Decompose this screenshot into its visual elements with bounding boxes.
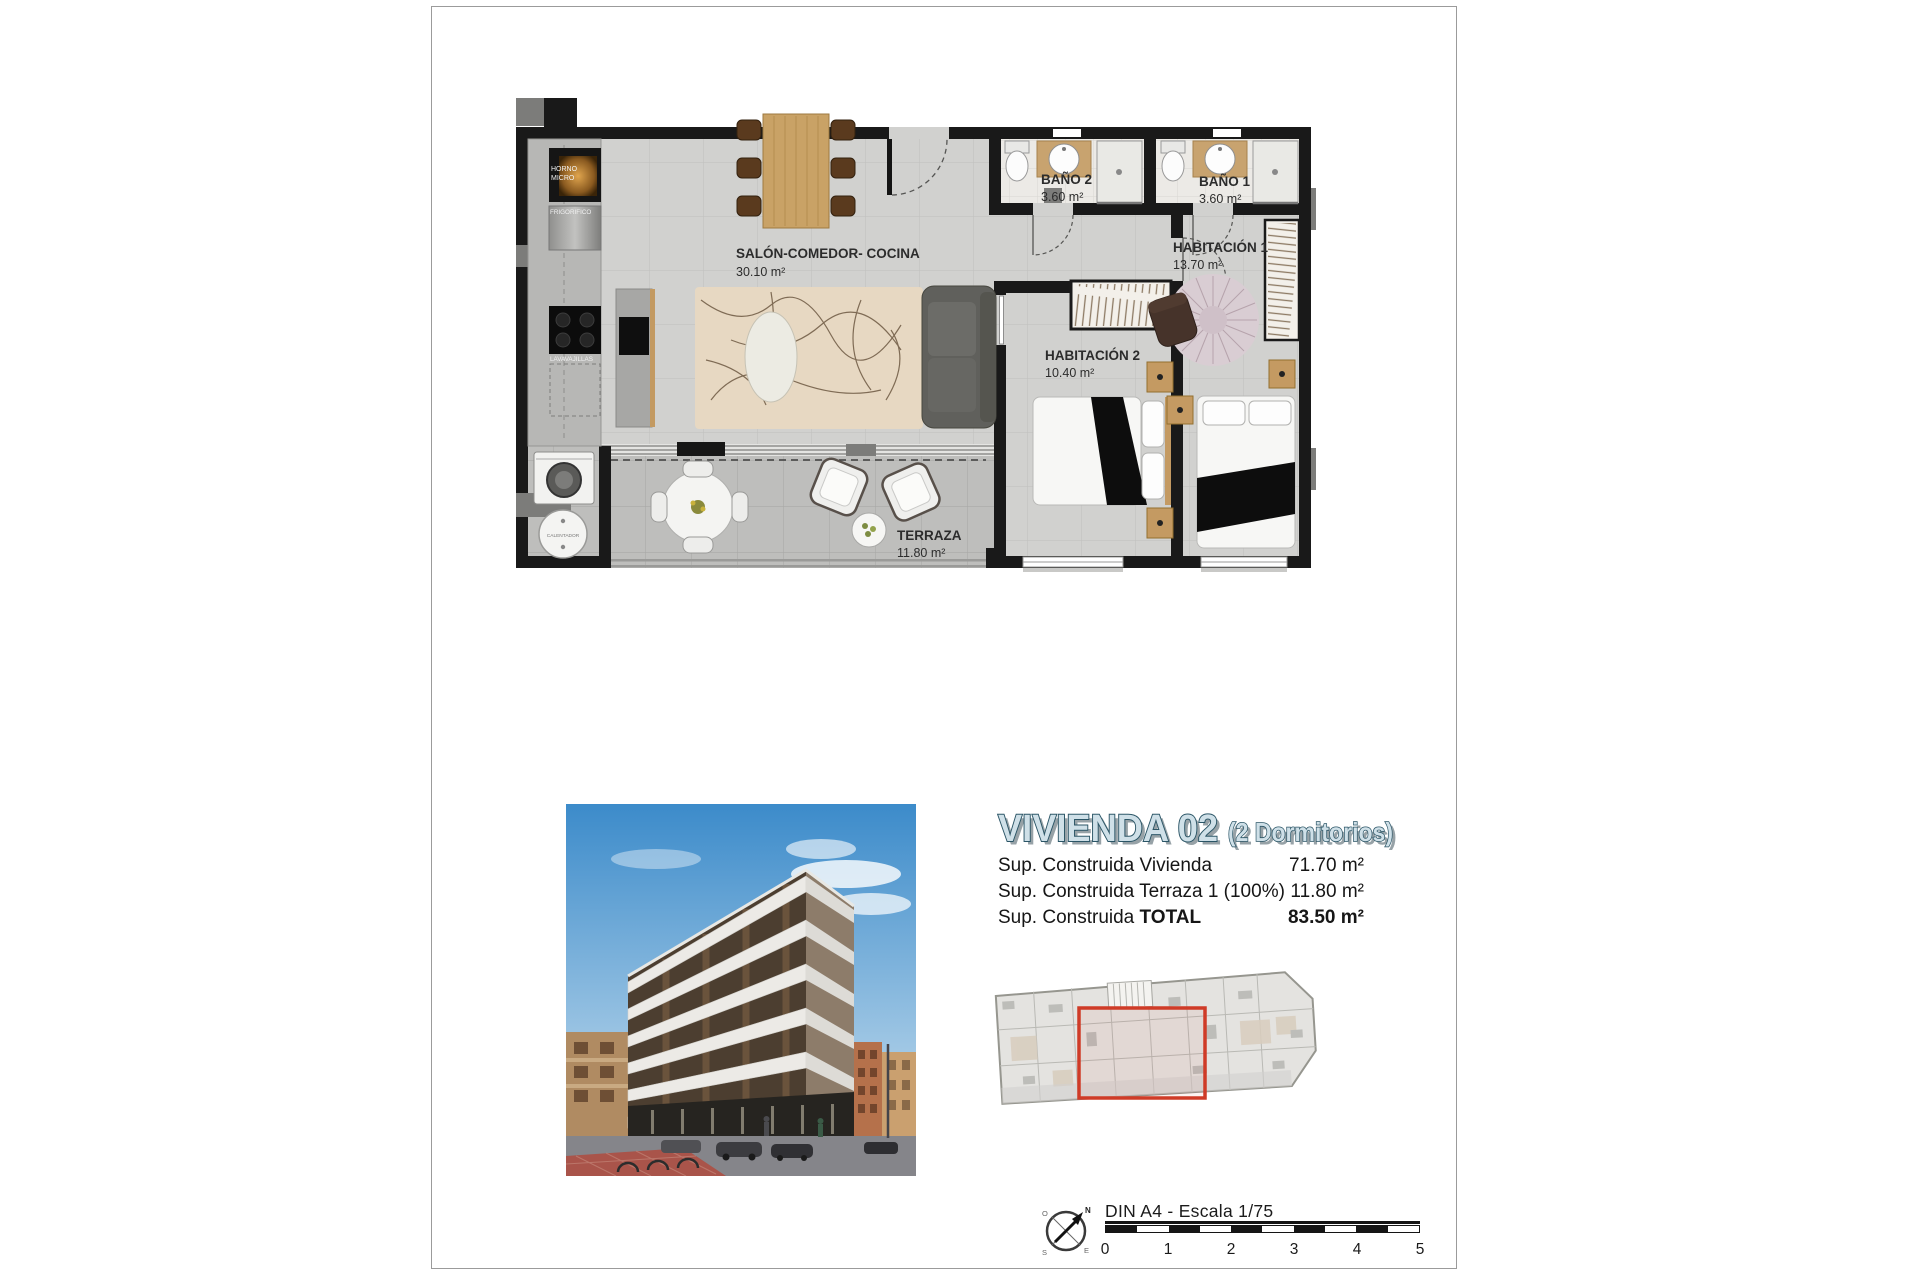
toilet [1162,151,1184,181]
rug [695,287,923,429]
side-table [852,513,886,547]
surface-row: Sup. Construida Vivienda 71.70 m² [998,853,1364,879]
title-block: VIVIENDA 02 (2 Dormitorios) VIVIENDA 02 … [996,797,1416,855]
surface-label: Sup. Construida [998,907,1140,928]
tv-unit [616,289,652,427]
scale-ticks: 0 1 2 3 4 5 [1105,1241,1420,1261]
calentador-label: CALENTADOR [547,533,580,539]
unit-highlight [1079,1008,1205,1098]
micro-label: MICRO [551,175,575,182]
compass-s: S [1042,1248,1047,1257]
hab2-area: 10.40 m² [1045,366,1094,380]
surface-value: 71.70 m² [1289,853,1364,879]
hab2-pocket-door [1000,296,1004,344]
compass-o: O [1042,1209,1048,1218]
coffee-table [745,312,797,402]
document-page: HORNO MICRO FRIGORIFICO LAVAVAJILLAS [431,6,1457,1269]
compass: N O S E [1030,1199,1112,1275]
toilet [1006,151,1028,181]
bano1-area: 3.60 m² [1199,192,1241,206]
hob [549,306,601,354]
tick: 4 [1353,1241,1362,1259]
screenshot-canvas: HORNO MICRO FRIGORIFICO LAVAVAJILLAS [0,0,1920,1280]
lavavajillas-label: LAVAVAJILLAS [550,356,593,363]
title: VIVIENDA 02 [998,808,1218,850]
tick: 1 [1164,1241,1173,1259]
tick: 3 [1290,1241,1299,1259]
surface-row: Sup. Construida Terraza 1 (100%) 11.80 m… [998,879,1364,905]
kitchen: HORNO MICRO FRIGORIFICO LAVAVAJILLAS [528,139,601,446]
compass-e: E [1084,1246,1089,1255]
tick: 5 [1416,1241,1425,1259]
bano2-label: BAÑO 2 [1041,172,1092,187]
subtitle: (2 Dormitorios) [1228,817,1393,847]
sofa [922,286,996,428]
salon-area: 30.10 m² [736,265,785,279]
hab1-area: 13.70 m² [1173,258,1222,272]
entry-door-leaf [887,139,892,195]
scale-bar [1105,1225,1420,1233]
vent-shaft [544,98,577,127]
surface-label: Sup. Construida Terraza 1 (100%) [998,881,1285,902]
surface-table: Sup. Construida Vivienda 71.70 m² Sup. C… [998,853,1364,931]
scale-bar-line [1105,1221,1420,1224]
floor-plan: HORNO MICRO FRIGORIFICO LAVAVAJILLAS [516,87,1316,572]
surface-label: Sup. Construida Vivienda [998,855,1212,876]
tick: 2 [1227,1241,1236,1259]
terraza-area: 11.80 m² [897,546,945,560]
hab1-label: HABITACIÓN 1 [1173,240,1268,255]
hab2-label: HABITACIÓN 2 [1045,348,1140,363]
bano1-label: BAÑO 1 [1199,174,1250,189]
surface-row-total: Sup. Construida TOTAL 83.50 m² [998,905,1364,931]
compass-n: N [1085,1206,1091,1215]
terraza-label: TERRAZA [897,528,962,543]
building-photo [566,804,916,1176]
bano2-area: 3.60 m² [1041,190,1083,204]
scale-label: DIN A4 - Escala 1/75 [1105,1201,1273,1222]
frigorifico-label: FRIGORIFICO [550,209,591,216]
surface-value: 83.50 m² [1288,905,1364,931]
horno-label: HORNO [551,166,578,173]
salon-label: SALÓN-COMEDOR- COCINA [736,246,920,261]
dining-set [737,114,855,228]
key-plan [991,968,1331,1126]
surface-value: 11.80 m² [1290,879,1364,905]
tick: 0 [1101,1241,1110,1259]
